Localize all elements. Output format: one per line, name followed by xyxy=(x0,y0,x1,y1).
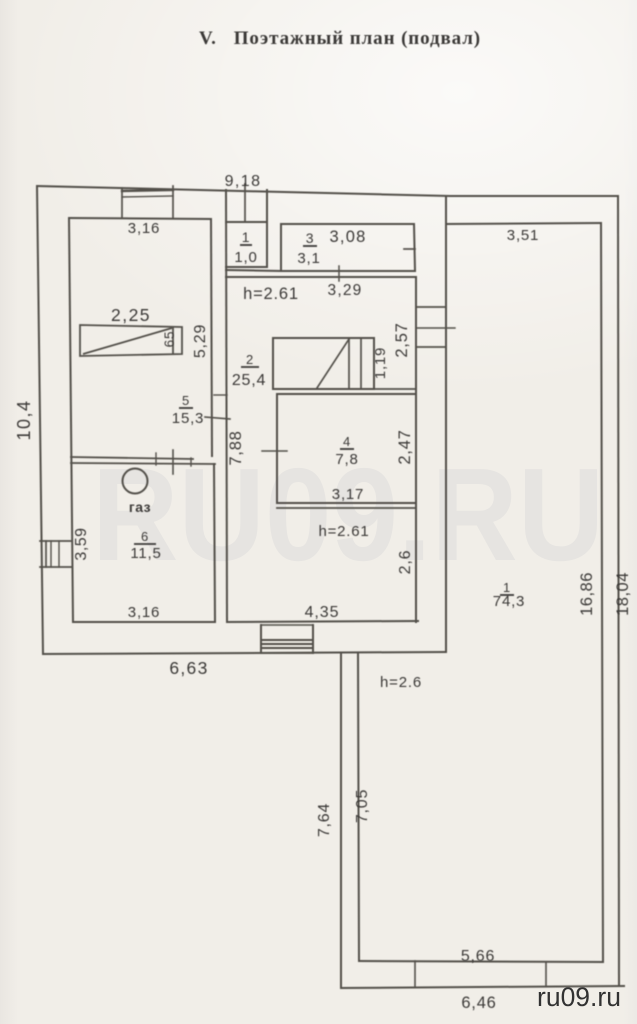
svg-text:25,4: 25,4 xyxy=(232,372,266,389)
svg-text:7,8: 7,8 xyxy=(335,451,358,468)
svg-text:3,59: 3,59 xyxy=(73,527,90,560)
svg-text:5: 5 xyxy=(182,393,190,408)
svg-text:7,05: 7,05 xyxy=(354,789,371,823)
svg-text:ru09.ru: ru09.ru xyxy=(537,982,621,1012)
svg-text:11,5: 11,5 xyxy=(130,545,161,562)
svg-text:3,16: 3,16 xyxy=(128,220,160,237)
svg-text:h=2.6: h=2.6 xyxy=(380,674,422,691)
svg-text:1,0: 1,0 xyxy=(234,249,257,266)
svg-text:3,1: 3,1 xyxy=(297,250,320,267)
svg-text:3: 3 xyxy=(306,230,315,246)
svg-text:2: 2 xyxy=(246,352,254,367)
svg-text:h=2.61: h=2.61 xyxy=(318,523,369,540)
svg-text:65: 65 xyxy=(162,331,177,348)
svg-text:2,47: 2,47 xyxy=(396,429,414,464)
svg-text:h=2.61: h=2.61 xyxy=(243,285,299,303)
svg-text:3,16: 3,16 xyxy=(128,604,160,621)
svg-text:2,25: 2,25 xyxy=(111,305,151,325)
svg-text:1: 1 xyxy=(242,229,251,245)
svg-text:3,08: 3,08 xyxy=(330,228,367,246)
svg-text:7,64: 7,64 xyxy=(316,803,333,837)
svg-text:4,35: 4,35 xyxy=(305,604,340,621)
svg-text:15,3: 15,3 xyxy=(172,410,204,427)
svg-text:5,66: 5,66 xyxy=(461,948,495,965)
svg-text:6,46: 6,46 xyxy=(461,994,496,1012)
svg-text:6,63: 6,63 xyxy=(169,658,208,678)
svg-text:2,57: 2,57 xyxy=(393,322,411,357)
svg-text:V. Поэтажный план (подвал): V. Поэтажный план (подвал) xyxy=(199,28,481,49)
svg-text:2,6: 2,6 xyxy=(397,550,414,575)
svg-text:5,29: 5,29 xyxy=(192,324,209,358)
svg-text:18,04: 18,04 xyxy=(614,572,632,616)
svg-text:16,86: 16,86 xyxy=(578,572,596,616)
svg-text:3,29: 3,29 xyxy=(328,282,363,299)
svg-text:9,18: 9,18 xyxy=(225,173,262,190)
svg-text:6: 6 xyxy=(141,529,149,544)
svg-text:4: 4 xyxy=(343,434,351,449)
svg-text:10,4: 10,4 xyxy=(14,399,34,440)
svg-text:3,51: 3,51 xyxy=(507,227,539,244)
svg-text:3,17: 3,17 xyxy=(332,486,364,503)
svg-text:74,3: 74,3 xyxy=(493,593,525,610)
svg-text:7,88: 7,88 xyxy=(227,430,245,465)
svg-text:газ: газ xyxy=(129,499,151,515)
svg-text:1,19: 1,19 xyxy=(372,347,389,379)
